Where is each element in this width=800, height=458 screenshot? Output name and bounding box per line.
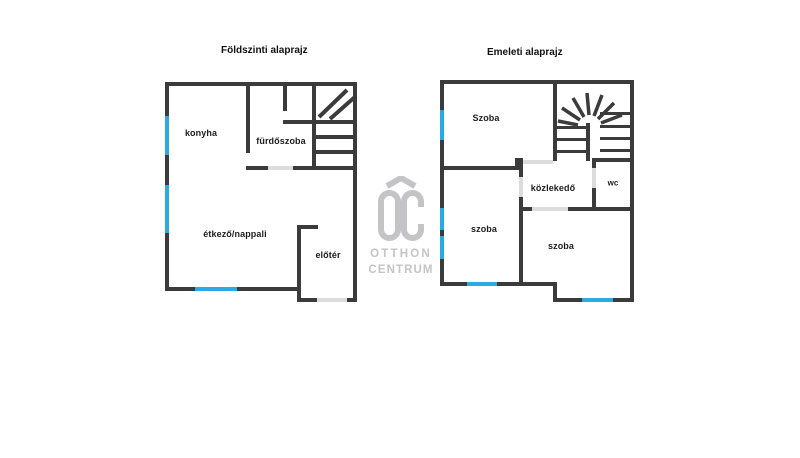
wall-segment (246, 82, 250, 153)
door-marker (268, 166, 293, 170)
wall-segment (246, 166, 357, 170)
room-label-konyha: konyha (185, 128, 217, 138)
stair-tread (557, 150, 586, 153)
ground-floor-plan: konyha fürdőszoba étkező/nappali előtér (165, 82, 358, 302)
window-marker (440, 208, 444, 230)
window-marker (440, 236, 444, 259)
room-label-eloter: előtér (315, 250, 340, 260)
window-marker (165, 116, 169, 155)
ground-plan-title: Földszinti alaprajz (221, 45, 308, 56)
room-label-kozlekedo: közlekedő (531, 183, 575, 193)
upper-plan-title: Emeleti alaprajz (487, 47, 563, 58)
stair-divider-wall (586, 123, 590, 161)
wall-segment (440, 166, 519, 170)
room-label-szoba-top: Szoba (472, 113, 499, 123)
wall-segment (592, 158, 634, 162)
stair-tread (600, 125, 630, 128)
door-marker (592, 168, 596, 188)
window-marker (467, 282, 497, 286)
stair-tread (316, 135, 353, 139)
window-marker (165, 185, 169, 233)
stair-tread (316, 150, 353, 154)
wall-segment (283, 120, 357, 124)
stairs-diagonal-icon (316, 86, 357, 120)
logo-line-otthon: OTTHON (370, 249, 432, 261)
otthon-centrum-logo: OTTHON CENTRUM (363, 176, 439, 276)
room-label-etkezo-nappali: étkező/nappali (203, 229, 266, 239)
room-label-furdoszoba: fürdőszoba (256, 136, 306, 146)
wall-segment (297, 225, 301, 302)
floorplan-canvas: Földszinti alaprajz Emeleti alaprajz kon… (0, 0, 800, 458)
stair-tread (600, 112, 630, 115)
window-marker (440, 110, 444, 140)
room-label-wc: wc (608, 179, 619, 188)
wall-segment (630, 80, 634, 302)
wall-segment (283, 82, 287, 111)
stair-tread (600, 137, 630, 140)
door-marker (519, 177, 523, 197)
upper-floor-plan: Szoba szoba szoba közlekedő wc (440, 80, 634, 305)
logo-line-centrum: CENTRUM (368, 265, 433, 277)
room-label-szoba-bottom: szoba (548, 241, 574, 251)
room-label-szoba-left: szoba (471, 224, 497, 234)
wall-segment (440, 282, 557, 286)
door-marker (317, 298, 347, 302)
door-marker (532, 207, 568, 211)
window-marker (195, 287, 237, 291)
window-marker (582, 298, 613, 302)
stairs-fan-icon (557, 84, 630, 129)
door-marker (523, 160, 553, 164)
stair-tread (600, 149, 630, 152)
oc-monogram-icon (377, 176, 425, 242)
wall-segment (297, 225, 318, 229)
stair-tread (557, 138, 586, 141)
stair-tread (557, 126, 586, 129)
